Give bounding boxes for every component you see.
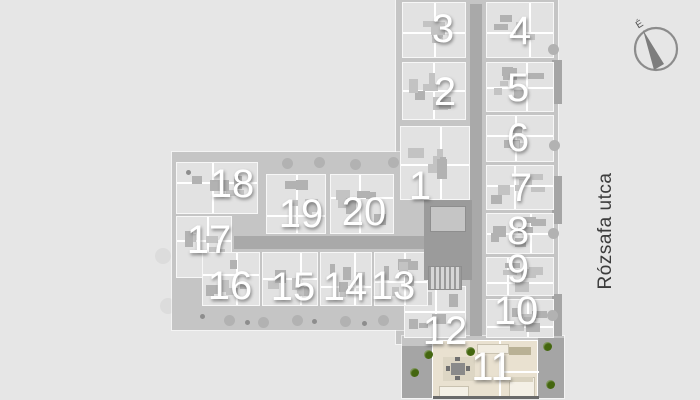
furniture (531, 187, 545, 192)
tree-icon (378, 315, 389, 326)
chair (455, 357, 460, 361)
unit-number-3[interactable]: 3 (432, 9, 454, 49)
plant-icon (543, 342, 552, 351)
unit-number-4[interactable]: 4 (509, 11, 531, 51)
tree-icon (314, 157, 325, 168)
unit-number-9[interactable]: 9 (507, 249, 529, 289)
compass-north-label: É (633, 16, 646, 31)
unit-number-17[interactable]: 17 (187, 220, 232, 260)
furniture (409, 79, 418, 93)
floor-plan-canvas: 1 2 3 4 5 6 7 8 9 10 11 12 13 14 15 16 1… (0, 0, 700, 400)
tree-icon (350, 159, 361, 170)
unit-number-14[interactable]: 14 (323, 267, 368, 307)
furniture (449, 294, 457, 306)
furniture (529, 267, 543, 275)
furniture (491, 195, 503, 205)
shrub-icon (312, 319, 317, 324)
staircase (428, 266, 462, 290)
furniture (494, 24, 508, 31)
tree-icon (282, 158, 293, 169)
furniture (528, 73, 544, 79)
tree-icon (388, 157, 399, 168)
unit-number-7[interactable]: 7 (510, 168, 532, 208)
corridor-vertical (470, 4, 482, 336)
unit-number-15[interactable]: 15 (271, 267, 316, 307)
furniture (285, 181, 296, 189)
tree-icon (258, 317, 269, 328)
unit-number-11[interactable]: 11 (471, 347, 513, 387)
furniture (437, 159, 447, 179)
furniture (296, 180, 309, 190)
unit-number-10[interactable]: 10 (494, 291, 539, 331)
shrub-icon (362, 321, 367, 326)
unit-number-12[interactable]: 12 (423, 311, 468, 351)
plant-icon (546, 380, 555, 389)
unit-number-20[interactable]: 20 (342, 192, 387, 232)
unit-number-6[interactable]: 6 (507, 118, 529, 158)
unit-number-13[interactable]: 13 (371, 266, 416, 306)
tree-icon (224, 315, 235, 326)
corridor-horizontal (234, 236, 430, 249)
furniture (192, 176, 202, 184)
street-label: Rózsafa utca (595, 173, 617, 290)
unit-number-5[interactable]: 5 (507, 68, 529, 108)
tree-icon (548, 44, 559, 55)
facade-wall (433, 396, 539, 399)
furniture (498, 185, 510, 195)
unit-number-1[interactable]: 1 (409, 166, 431, 206)
tree-icon (155, 248, 171, 264)
unit-number-16[interactable]: 16 (208, 266, 253, 306)
elevator (430, 206, 466, 232)
unit-number-2[interactable]: 2 (434, 72, 456, 112)
chair (446, 366, 450, 371)
chair (466, 366, 470, 371)
tree-icon (292, 315, 303, 326)
chair (455, 376, 460, 380)
shrub-icon (200, 314, 205, 319)
unit-number-18[interactable]: 18 (210, 164, 255, 204)
furniture (408, 148, 424, 158)
shrub-icon (245, 320, 250, 325)
tree-icon (340, 316, 351, 327)
shrub-icon (186, 170, 191, 175)
unit-number-19[interactable]: 19 (279, 194, 324, 234)
tree-icon (549, 140, 560, 151)
unit-number-8[interactable]: 8 (507, 211, 529, 251)
furniture (494, 88, 502, 94)
dining-table (451, 363, 465, 375)
tree-icon (547, 310, 558, 321)
furniture (409, 319, 417, 329)
compass-icon: É (630, 14, 684, 78)
plant-icon (410, 368, 419, 377)
tree-icon (548, 228, 559, 239)
furniture (531, 219, 546, 226)
furniture (493, 226, 506, 237)
